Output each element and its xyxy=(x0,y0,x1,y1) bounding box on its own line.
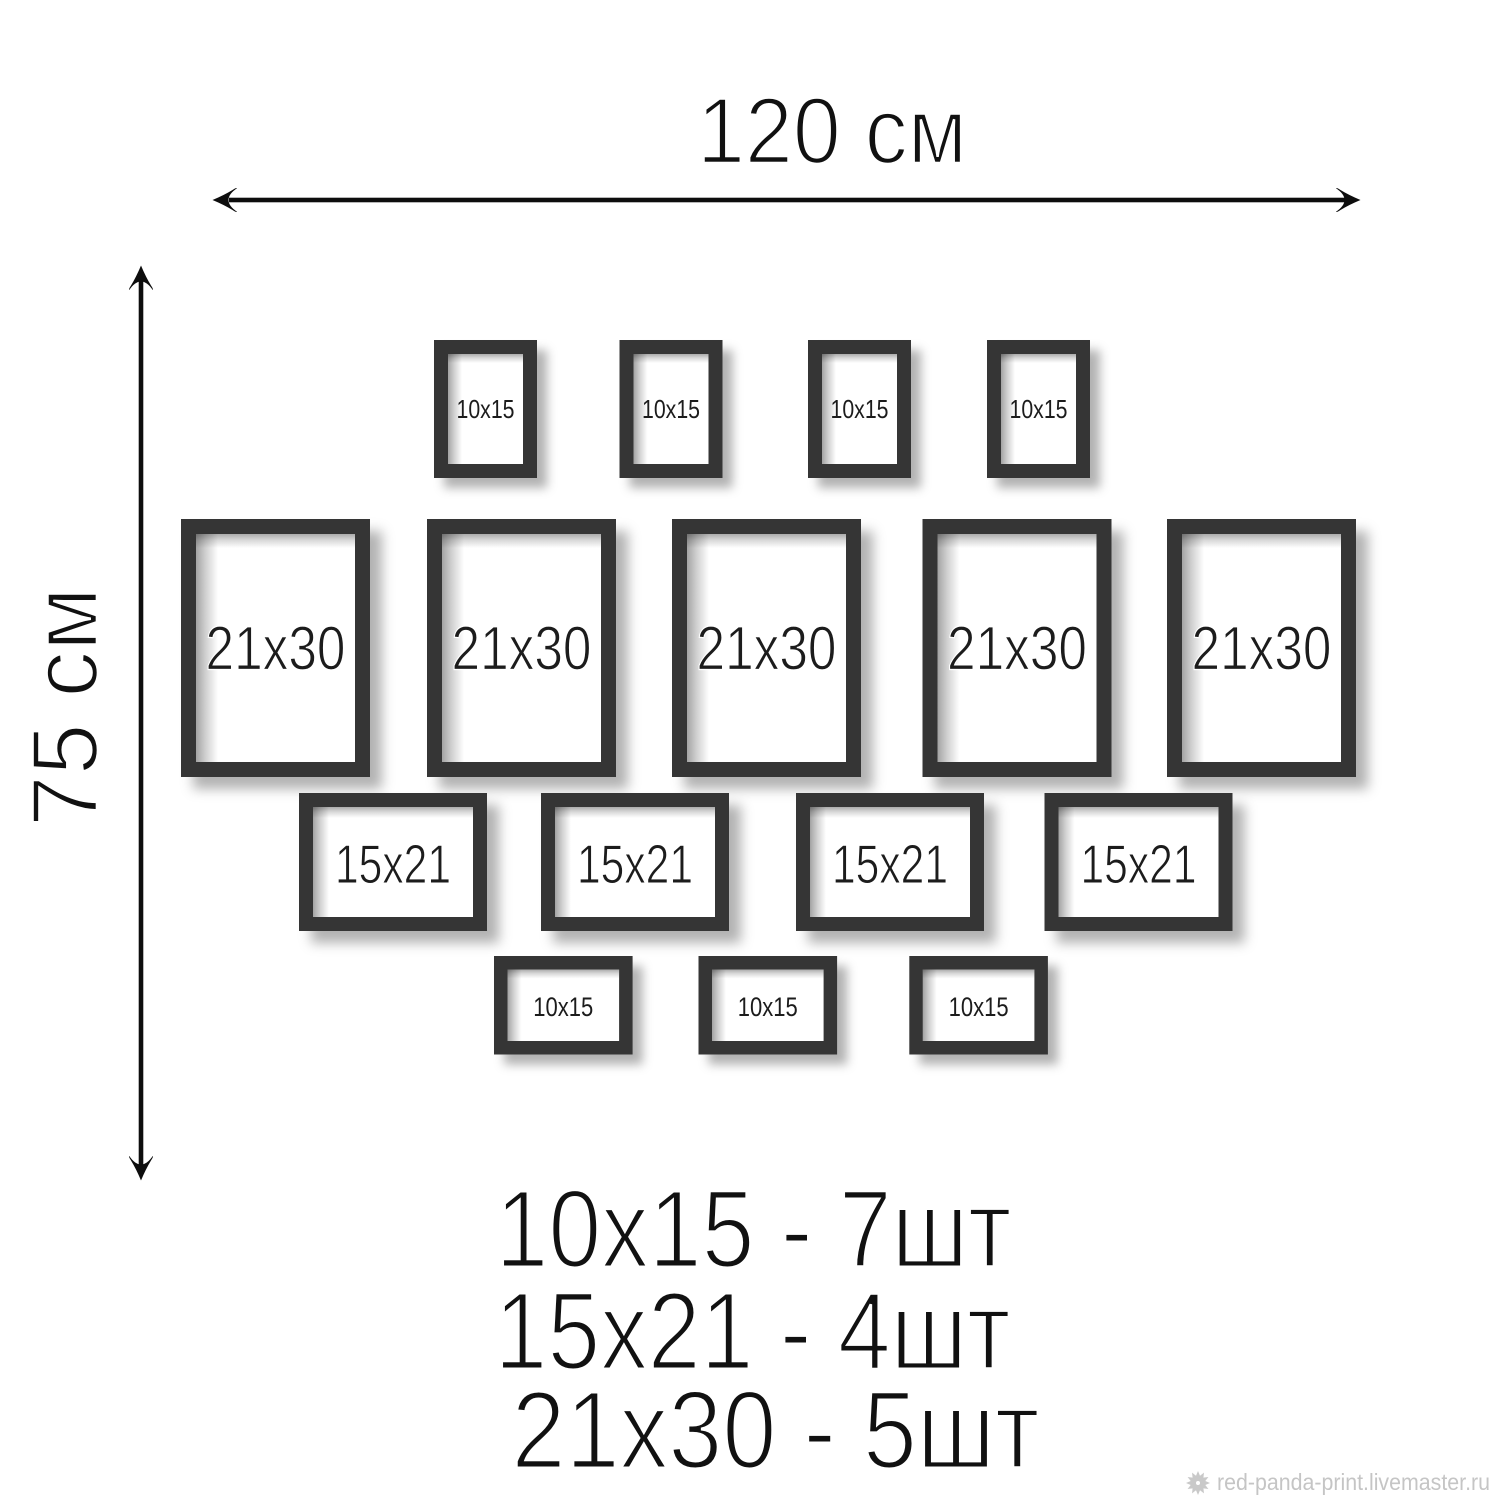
svg-text:10x15: 10x15 xyxy=(949,992,1009,1022)
svg-text:15x21: 15x21 xyxy=(335,833,451,895)
svg-text:15x21: 15x21 xyxy=(577,833,693,895)
svg-text:21x30: 21x30 xyxy=(697,615,837,684)
svg-text:red-panda-print.livemaster.ru: red-panda-print.livemaster.ru xyxy=(1217,1469,1490,1495)
svg-text:21x30: 21x30 xyxy=(947,615,1087,684)
svg-text:10x15: 10x15 xyxy=(1010,394,1068,424)
svg-text:75 см: 75 см xyxy=(12,587,117,827)
svg-text:120 см: 120 см xyxy=(697,78,967,183)
svg-text:21x30: 21x30 xyxy=(206,615,346,684)
svg-text:10x15: 10x15 xyxy=(831,394,889,424)
svg-text:10x15: 10x15 xyxy=(457,394,515,424)
svg-text:10x15: 10x15 xyxy=(533,992,593,1022)
svg-text:21x30 - 5шт: 21x30 - 5шт xyxy=(512,1369,1040,1492)
svg-text:15x21: 15x21 xyxy=(1081,833,1197,895)
svg-text:15x21: 15x21 xyxy=(832,833,948,895)
svg-text:21x30: 21x30 xyxy=(452,615,592,684)
svg-text:10x15: 10x15 xyxy=(738,992,798,1022)
svg-text:10x15: 10x15 xyxy=(642,394,700,424)
svg-text:21x30: 21x30 xyxy=(1192,615,1332,684)
